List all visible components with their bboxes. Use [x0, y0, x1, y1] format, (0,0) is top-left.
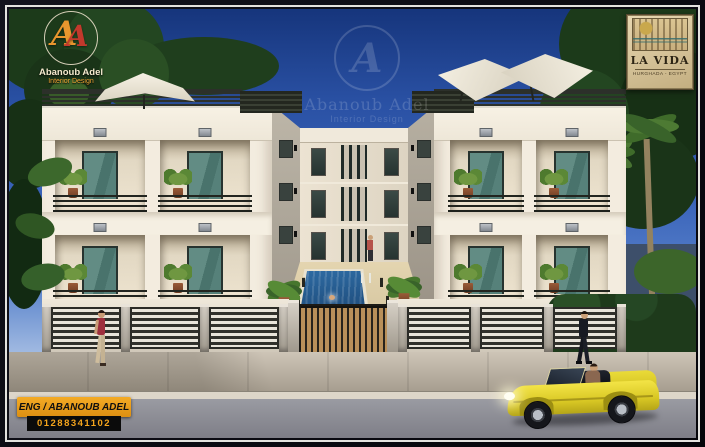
gate-pillar	[288, 300, 299, 352]
parapet	[300, 128, 408, 143]
building-wing-left	[42, 105, 272, 317]
person-poolside	[365, 235, 375, 263]
balcony-bay	[450, 235, 522, 307]
balcony-bay	[450, 140, 522, 212]
head	[98, 310, 105, 318]
fence-pillar	[279, 304, 288, 352]
project-name: LA VIDA	[631, 54, 690, 67]
palm-fronds	[164, 167, 192, 189]
fence-panel	[130, 307, 200, 349]
wall-lamp	[411, 231, 414, 237]
project-location: HURGHADA - EGYPT	[633, 72, 687, 77]
palm-fronds	[454, 167, 482, 189]
lavida-emblem-icon	[632, 18, 688, 51]
potted-palm	[540, 166, 568, 198]
balcony-railing	[53, 195, 147, 212]
shoe	[100, 363, 106, 366]
window	[311, 148, 326, 176]
balcony-railing	[448, 195, 524, 212]
wall-lamp	[480, 128, 493, 137]
wall-lamp	[94, 223, 107, 232]
gate-pillar	[387, 300, 398, 352]
floor-row	[300, 184, 408, 226]
pedestrian-woman	[93, 309, 109, 389]
monogram-a-red: A	[66, 19, 89, 53]
umbrella-pole	[143, 95, 145, 109]
balcony-door	[82, 246, 118, 294]
window	[417, 226, 431, 244]
window	[417, 183, 431, 201]
fence-pillar	[398, 304, 407, 352]
wall-lamp	[294, 145, 297, 151]
wall-lamp	[199, 128, 212, 137]
tree-foliage	[634, 249, 696, 294]
palm-fronds	[164, 262, 192, 284]
designer-logo: A A Abanoub Adel Interior Design	[23, 11, 119, 85]
window	[279, 140, 293, 158]
wall-lamp	[199, 223, 212, 232]
wall-lamp	[294, 188, 297, 194]
window	[384, 190, 399, 218]
fence-panel	[209, 307, 279, 349]
watermark-name: Abanoub Adel	[292, 95, 442, 114]
wall-lamp	[480, 223, 493, 232]
pool-ladder	[361, 273, 371, 283]
window	[311, 232, 326, 260]
designer-logo-circle: A A	[44, 11, 98, 65]
balcony-door	[82, 151, 118, 199]
floor-row	[300, 142, 408, 184]
floor-slab	[42, 212, 272, 235]
window	[279, 183, 293, 201]
potted-palm	[454, 166, 482, 198]
balcony-railing	[534, 195, 610, 212]
designer-name: Abanoub Adel	[23, 67, 119, 78]
fence-pillar	[42, 304, 51, 352]
watermark-circle: A	[334, 25, 400, 91]
palm-fronds	[454, 262, 482, 284]
designer-tagline: Interior Design	[23, 78, 119, 85]
yellow-convertible-car	[506, 358, 663, 433]
window	[311, 190, 326, 218]
balcony-door	[187, 151, 223, 199]
wall-lamp	[566, 128, 579, 137]
fence-panel	[51, 307, 121, 349]
balcony-bay	[55, 140, 145, 212]
fence-pillar	[544, 304, 553, 352]
parapet	[42, 105, 272, 141]
photo-frame: A Abanoub Adel Interior Design A A Abano…	[0, 0, 705, 447]
window	[417, 140, 431, 158]
project-badge: LA VIDA HURGHADA - EGYPT	[626, 14, 694, 90]
wall-lamp	[294, 231, 297, 237]
legs	[368, 250, 373, 261]
fence-pillar	[121, 304, 130, 352]
palm-fronds	[540, 167, 568, 189]
head	[581, 311, 588, 319]
phone-badge: 01288341102	[27, 416, 121, 431]
gate-leaf	[299, 304, 391, 354]
entrance-gate	[288, 300, 398, 352]
wall-lamp	[566, 223, 579, 232]
balcony-door	[187, 246, 223, 294]
window	[384, 232, 399, 260]
watermark-logo: A Abanoub Adel Interior Design	[292, 25, 442, 124]
render-scene: A Abanoub Adel Interior Design A A Abano…	[9, 9, 696, 438]
wall-lamp	[94, 128, 107, 137]
fence-pillar	[471, 304, 480, 352]
torso	[579, 319, 588, 337]
engineer-badge: ENG / ABANOUB ADEL	[17, 397, 131, 417]
balcony-railing	[158, 195, 252, 212]
pool-bollard	[302, 277, 305, 287]
window-strip	[341, 187, 367, 221]
wall-lamp	[411, 188, 414, 194]
building-wing-right	[434, 105, 626, 317]
window-strip	[341, 145, 367, 179]
pool-bollard	[380, 277, 383, 287]
potted-palm	[164, 166, 192, 198]
balcony-bay	[160, 235, 250, 307]
fence-pillar	[200, 304, 209, 352]
window-strip	[341, 229, 367, 263]
window	[279, 226, 293, 244]
potted-palm	[540, 261, 568, 293]
watermark-monogram: A	[351, 35, 382, 82]
balcony-bay	[160, 140, 250, 212]
palm-fronds	[540, 262, 568, 284]
floor-row	[300, 226, 408, 268]
floor-slab	[434, 212, 626, 235]
fence-pillar	[617, 304, 626, 352]
wall-lamp	[411, 145, 414, 151]
badge-divider	[635, 69, 685, 70]
potted-palm	[454, 261, 482, 293]
watermark-tagline: Interior Design	[292, 114, 442, 124]
fence-panel	[407, 307, 471, 349]
fence-run-left	[42, 304, 288, 352]
fence-panel	[480, 307, 544, 349]
torso	[367, 240, 373, 250]
balcony-bay	[536, 140, 608, 212]
leg	[101, 335, 105, 364]
window	[384, 148, 399, 176]
potted-palm	[164, 261, 192, 293]
driver-body	[585, 370, 601, 383]
leg	[582, 337, 590, 363]
balcony-bay	[55, 235, 145, 307]
